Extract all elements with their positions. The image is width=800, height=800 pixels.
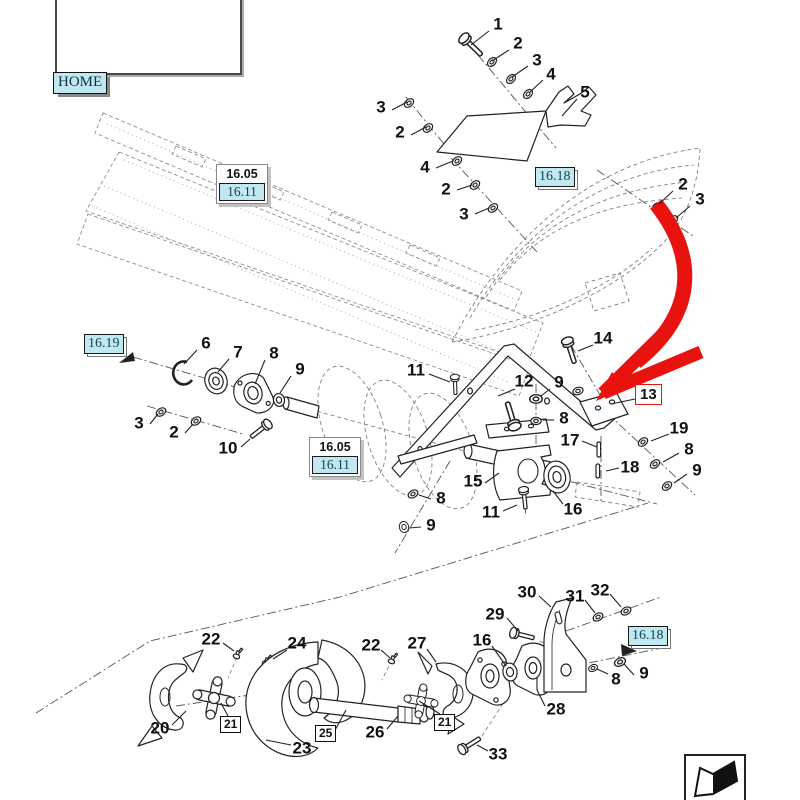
boxed-part-callout-21: 21 [220,716,241,733]
part-callout-8: 8 [611,671,620,688]
page-flip-icon[interactable] [684,754,746,800]
ref-link-16.18[interactable]: 16.18 [535,167,575,187]
part-callout-29: 29 [486,606,505,623]
labels-layer: 1234532423231467891112983219101781891581… [0,0,800,800]
boxed-part-callout-21: 21 [434,714,455,731]
part-callout-8: 8 [559,410,568,427]
part-callout-6: 6 [201,335,210,352]
part-callout-7: 7 [233,344,242,361]
ref-box-16.05-16.11: 16.0516.11 [309,437,361,477]
part-callout-2: 2 [395,124,404,141]
highlighted-part-callout-13[interactable]: 13 [635,384,662,405]
part-callout-10: 10 [219,440,238,457]
part-callout-3: 3 [376,99,385,116]
ref-label-16.05[interactable]: 16.05 [219,167,265,182]
part-callout-27: 27 [408,635,427,652]
part-callout-1: 1 [493,16,502,33]
part-callout-24: 24 [288,635,307,652]
part-callout-11: 11 [407,362,425,379]
part-callout-2: 2 [513,35,522,52]
part-callout-9: 9 [295,361,304,378]
part-callout-31: 31 [566,588,585,605]
ref-link-16.11[interactable]: 16.11 [312,456,358,474]
part-callout-16: 16 [564,501,583,518]
part-callout-3: 3 [532,52,541,69]
part-callout-9: 9 [426,517,435,534]
part-callout-12: 12 [515,373,534,390]
part-callout-2: 2 [678,176,687,193]
part-callout-16: 16 [473,632,492,649]
parts-catalog-page: 1234532423231467891112983219101781891581… [0,0,800,800]
part-callout-8: 8 [436,490,445,507]
part-callout-4: 4 [420,159,429,176]
part-callout-4: 4 [546,66,555,83]
part-callout-11: 11 [482,504,500,521]
part-callout-2: 2 [169,424,178,441]
ref-label-16.05[interactable]: 16.05 [312,440,358,455]
part-callout-14: 14 [594,330,613,347]
ref-link-16.19[interactable]: 16.19 [84,334,124,354]
part-callout-26: 26 [366,724,385,741]
part-callout-8: 8 [684,441,693,458]
home-button[interactable]: HOME [53,72,107,94]
part-callout-32: 32 [591,582,610,599]
part-callout-18: 18 [621,459,640,476]
part-callout-3: 3 [134,415,143,432]
part-callout-22: 22 [202,631,221,648]
ref-link-16.18[interactable]: 16.18 [628,626,668,646]
part-callout-3: 3 [459,206,468,223]
part-callout-9: 9 [554,374,563,391]
part-callout-3: 3 [695,191,704,208]
boxed-part-callout-25: 25 [315,725,336,742]
part-callout-30: 30 [518,584,537,601]
part-callout-15: 15 [464,473,483,490]
part-callout-33: 33 [489,746,508,763]
part-callout-9: 9 [692,462,701,479]
part-callout-23: 23 [293,740,312,757]
part-callout-20: 20 [151,720,170,737]
part-callout-22: 22 [362,637,381,654]
part-callout-8: 8 [269,345,278,362]
part-callout-28: 28 [547,701,566,718]
ref-box-16.05-16.11: 16.0516.11 [216,164,268,204]
part-callout-5: 5 [580,84,589,101]
part-callout-17: 17 [561,432,580,449]
part-callout-2: 2 [441,181,450,198]
part-callout-9: 9 [639,665,648,682]
preview-thumbnail[interactable] [55,0,242,75]
part-callout-19: 19 [670,420,689,437]
ref-link-16.11[interactable]: 16.11 [219,183,265,201]
page-flip-glyph [686,756,740,800]
